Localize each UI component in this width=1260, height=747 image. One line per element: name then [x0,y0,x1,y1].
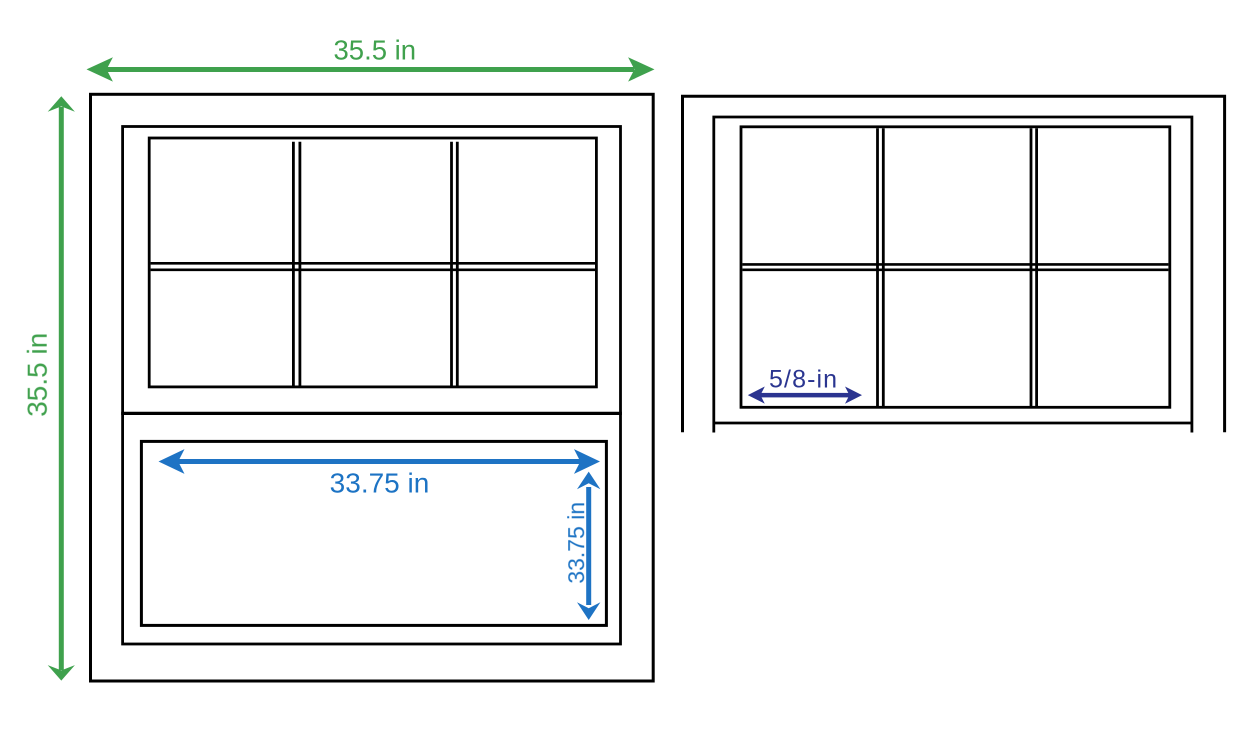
svg-text:35.5 in: 35.5 in [334,34,417,65]
svg-text:33.75 in: 33.75 in [330,467,430,498]
svg-text:35.5 in: 35.5 in [22,333,53,417]
svg-text:33.75 in: 33.75 in [563,502,589,584]
svg-text:5/8-in: 5/8-in [769,366,838,394]
